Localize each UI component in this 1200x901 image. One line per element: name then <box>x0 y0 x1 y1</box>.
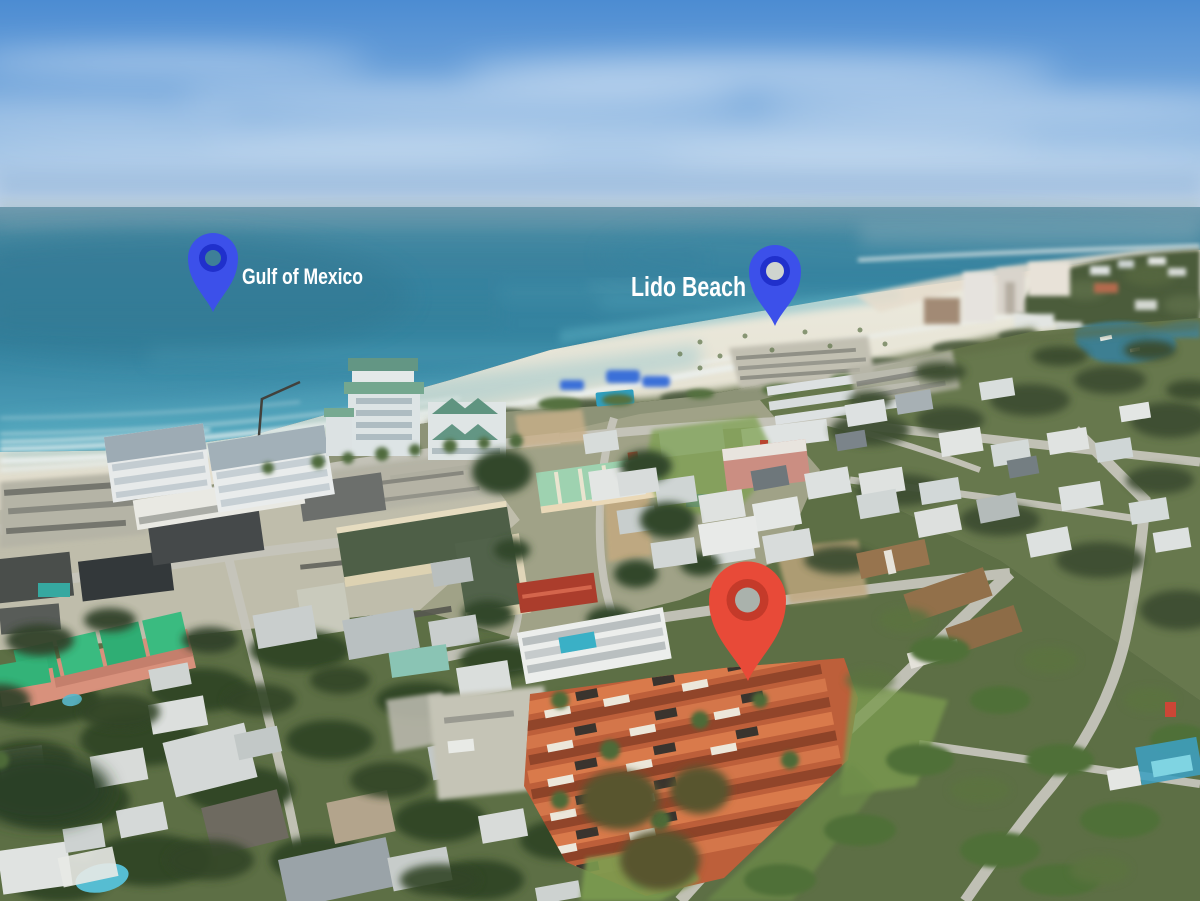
svg-text:Lido Beach: Lido Beach <box>631 271 746 302</box>
svg-text:Gulf of Mexico: Gulf of Mexico <box>242 264 363 289</box>
